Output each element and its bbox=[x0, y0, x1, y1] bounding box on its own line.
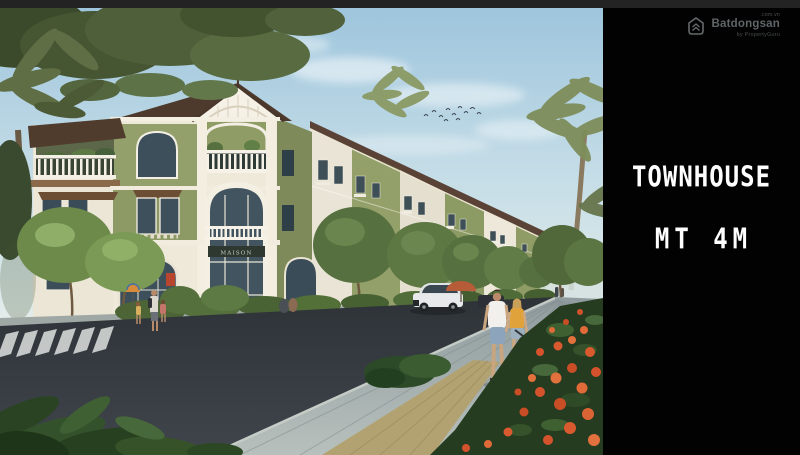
panel-subtitle: MT 4M bbox=[603, 222, 800, 256]
slide: MAISON bbox=[0, 0, 800, 455]
watermark-byline: by PropertyGuru bbox=[737, 33, 780, 39]
top-balcony bbox=[197, 150, 275, 173]
watermark-text: .com.vn Batdongsan by PropertyGuru bbox=[712, 13, 780, 38]
render-photo: MAISON bbox=[0, 0, 603, 455]
red-street-sign bbox=[166, 273, 175, 286]
panel-title: TOWNHOUSE bbox=[603, 160, 800, 194]
batdongsan-logo-icon bbox=[686, 16, 706, 36]
watermark: .com.vn Batdongsan by PropertyGuru bbox=[686, 13, 780, 38]
shop-sign-text: MAISON bbox=[220, 251, 252, 257]
info-panel: .com.vn Batdongsan by PropertyGuru TOWNH… bbox=[603, 0, 800, 455]
panel-text: TOWNHOUSE MT 4M bbox=[603, 160, 800, 250]
watermark-brand: Batdongsan bbox=[712, 19, 780, 31]
top-letterbox-bar bbox=[0, 0, 800, 8]
